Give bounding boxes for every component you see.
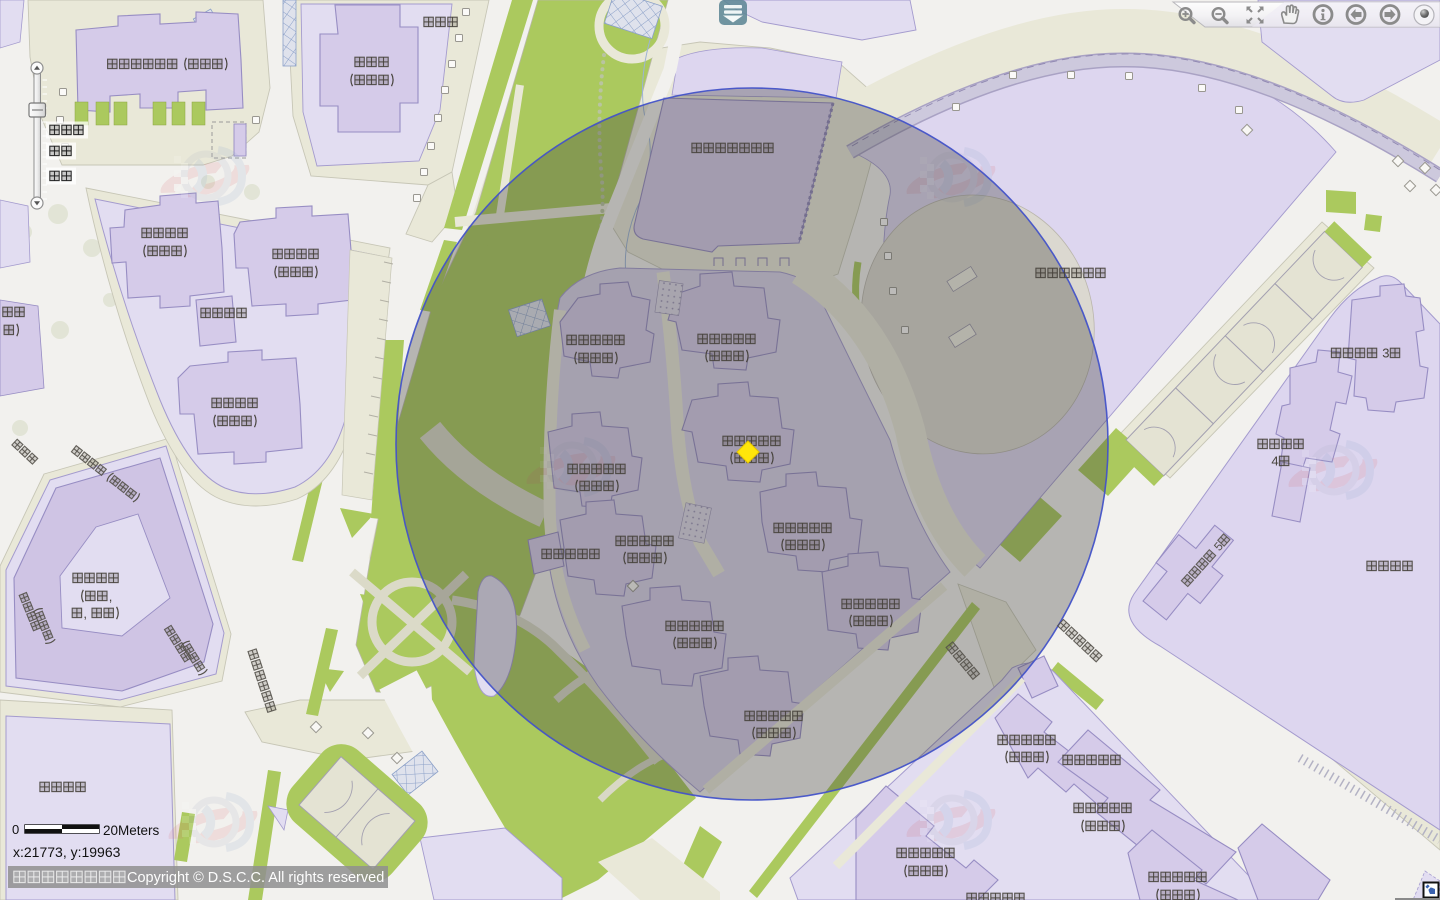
svg-text:4: 4	[1271, 454, 1278, 469]
svg-text:20Meters: 20Meters	[103, 823, 160, 838]
svg-text:x:21773, y:19963: x:21773, y:19963	[13, 844, 121, 860]
svg-text:0: 0	[12, 822, 19, 837]
svg-text:3: 3	[1382, 346, 1389, 361]
svg-text:Copyright © D.S.C.C. All right: Copyright © D.S.C.C. All rights reserved	[127, 870, 384, 886]
svg-text:,: ,	[109, 589, 113, 604]
svg-text:,: ,	[83, 606, 87, 621]
